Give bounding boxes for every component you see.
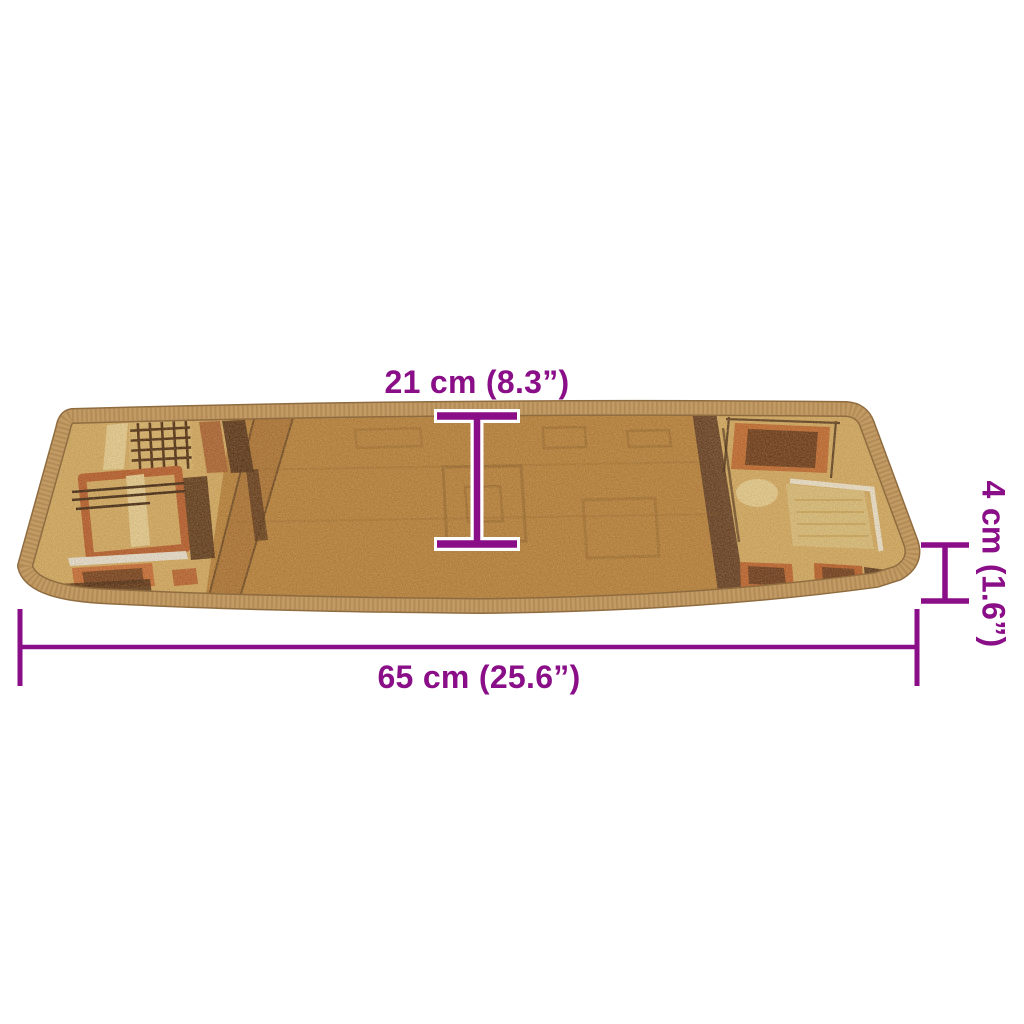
width-dimension-label: 65 cm (25.6”) <box>377 659 580 696</box>
thickness-dimension-line <box>921 545 969 601</box>
depth-dimension-label: 21 cm (8.3”) <box>384 364 569 401</box>
product-dimension-image: 21 cm (8.3”) 4 cm (1.6”) 65 cm (25.6”) <box>0 0 1024 1024</box>
stair-carpet-illustration <box>0 0 1024 1024</box>
carpet-mat <box>0 395 1024 625</box>
thickness-dimension-label: 4 cm (1.6”) <box>975 481 1012 648</box>
